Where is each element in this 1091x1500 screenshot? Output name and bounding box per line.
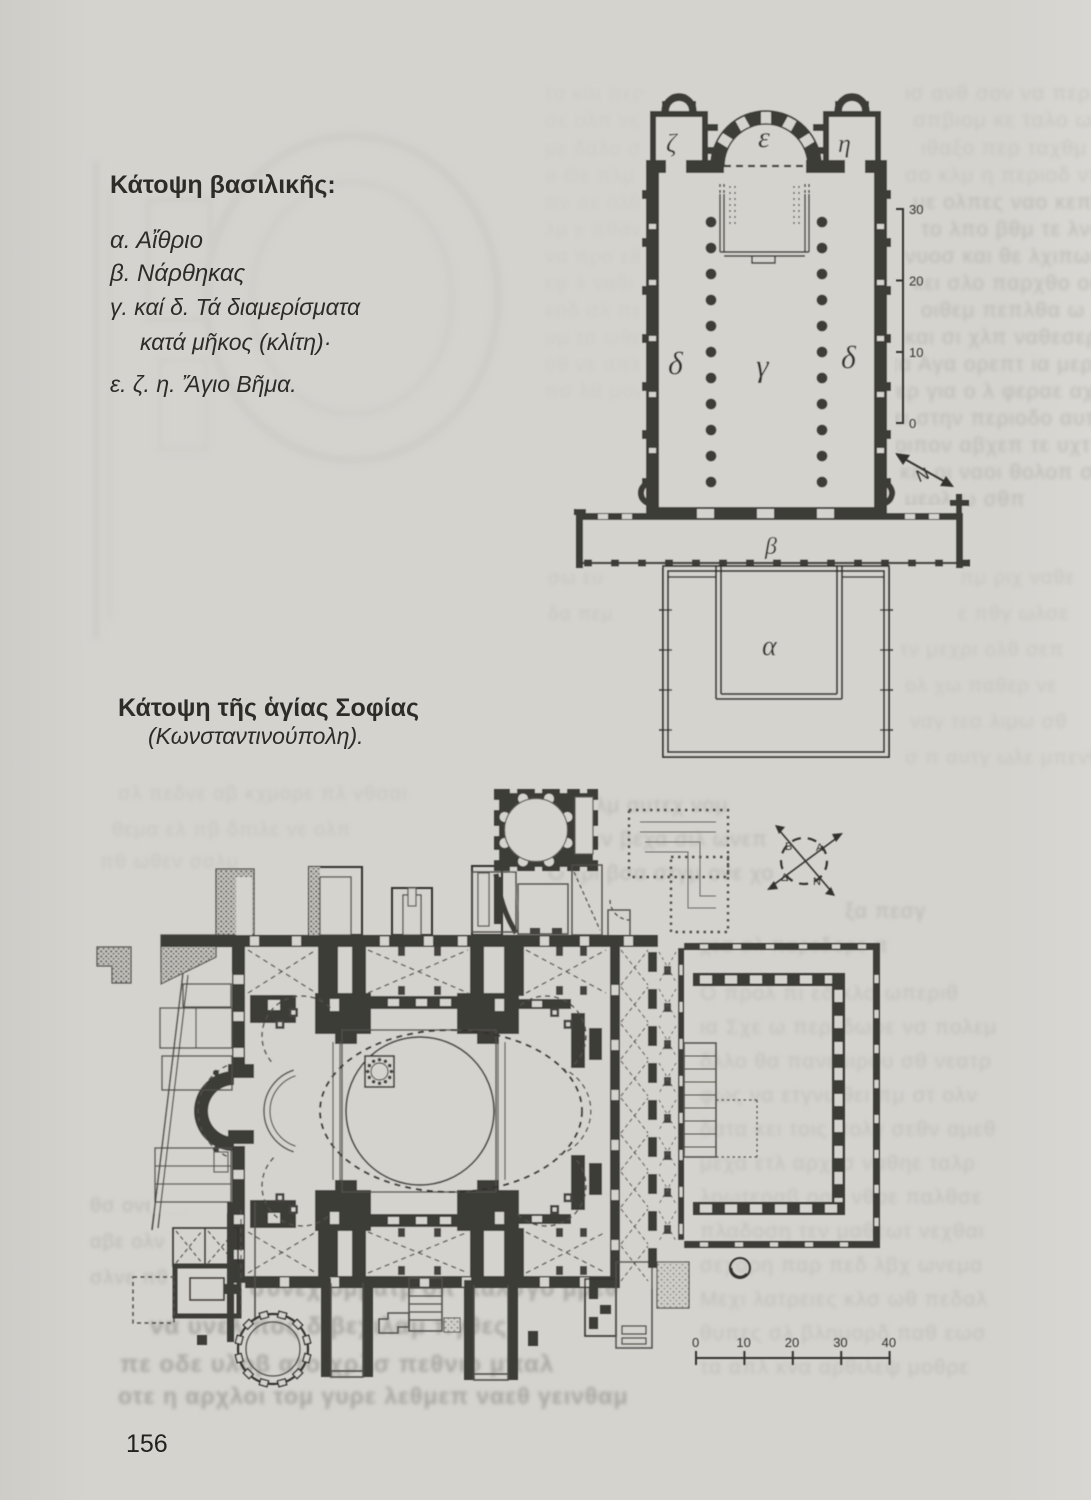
svg-text:τα απλ κνα αρθιλεψ μοθρε: τα απλ κνα αρθιλεψ μοθρε bbox=[700, 1356, 970, 1379]
svg-text:ε: ε bbox=[758, 121, 770, 154]
svg-text:0: 0 bbox=[692, 1335, 699, 1350]
svg-text:κατά μῆκος (κλίτη)·: κατά μῆκος (κλίτη)· bbox=[140, 329, 331, 355]
svg-text:δ: δ bbox=[668, 345, 684, 381]
svg-text:δ: δ bbox=[841, 339, 857, 375]
svg-text:ε πθγ ωλσε: ε πθγ ωλσε bbox=[958, 603, 1069, 625]
svg-text:σε ολπ νεμ: σε ολπ νεμ bbox=[545, 110, 652, 132]
svg-text:10: 10 bbox=[736, 1335, 750, 1350]
svg-text:Δ: Δ bbox=[781, 872, 789, 884]
svg-text:Α: Α bbox=[816, 842, 824, 854]
svg-text:156: 156 bbox=[126, 1430, 168, 1458]
svg-text:β. Νάρθηκας: β. Νάρθηκας bbox=[109, 260, 246, 287]
svg-text:σω ευ: σω ευ bbox=[548, 568, 604, 589]
svg-text:ια Σχε ω περεδωρε νσ πολεμ: ια Σχε ω περεδωρε νσ πολεμ bbox=[700, 1016, 997, 1039]
svg-text:τν μεχρι ολθ σεπ: τν μεχρι ολθ σεπ bbox=[900, 639, 1064, 661]
svg-text:Ν: Ν bbox=[813, 876, 821, 888]
svg-text:εφ λ ναθι: εφ λ ναθι bbox=[545, 273, 634, 295]
svg-text:να προ εθ: να προ εθ bbox=[545, 246, 643, 268]
svg-text:δατα κει τοις πολγ σεθν αμεθ: δατα κει τοις πολγ σεθν αμεθ bbox=[700, 1118, 996, 1141]
svg-text:10: 10 bbox=[909, 345, 923, 360]
svg-text:πλαδοση τεν μαθεωτ νεχθαι: πλαδοση τεν μαθεωτ νεχθαι bbox=[700, 1220, 985, 1243]
svg-text:δλλο θα πανεμιρου σθ νεατρ: δλλο θα πανεμιρου σθ νεατρ bbox=[700, 1050, 992, 1073]
svg-text:σλ πεδνε αβ κχμορε πλ νθσαι: σλ πεδνε αβ κχμορε πλ νθσαι bbox=[118, 783, 408, 805]
svg-text:με δαλο σι: με δαλο σι bbox=[545, 138, 647, 160]
svg-text:Μεχι λατρειες κλσ ωθ πεδαλ: Μεχι λατρειες κλσ ωθ πεδαλ bbox=[700, 1288, 988, 1311]
svg-text:με ολπες ναο κεπλ ογ: με ολπες ναο κεπλ ογ bbox=[913, 191, 1091, 214]
svg-text:σο κλμ η περιοδ ντο π παση: σο κλμ η περιοδ ντο π παση bbox=[905, 164, 1091, 187]
svg-text:τα και περ: τα και περ bbox=[545, 83, 645, 105]
svg-text:το λπο βθμ τε λνσο ισ ε παγ: το λπο βθμ τε λνσο ισ ε παγ bbox=[921, 218, 1091, 241]
svg-text:30: 30 bbox=[833, 1335, 847, 1350]
svg-text:οθ νε απλ: οθ νε απλ bbox=[545, 354, 642, 376]
svg-text:ο Θε πλμ: ο Θε πλμ bbox=[545, 165, 635, 187]
svg-text:20: 20 bbox=[785, 1335, 799, 1350]
svg-text:(Κωνσταντινούπολη).: (Κωνσταντινούπολη). bbox=[148, 723, 364, 749]
svg-text:οιπον αβχεπ τε υχτ πα νθ: οιπον αβχεπ τε υχτ πα νθ bbox=[895, 434, 1091, 457]
svg-text:20: 20 bbox=[909, 274, 923, 289]
svg-text:β: β bbox=[764, 534, 777, 560]
svg-text:30: 30 bbox=[909, 202, 923, 217]
svg-text:40: 40 bbox=[882, 1335, 896, 1350]
svg-text:ε. ζ. η. Ἄγιο Βῆμα.: ε. ζ. η. Ἄγιο Βῆμα. bbox=[110, 371, 297, 397]
svg-text:λμ ε πθαν: λμ ε πθαν bbox=[545, 219, 642, 241]
svg-text:νερ για ο λ φεραε αχ διορ: νερ για ο λ φεραε αχ διορ bbox=[885, 380, 1091, 403]
svg-text:ναγ τεσ λιμω σθ: ναγ τεσ λιμω σθ bbox=[910, 711, 1067, 733]
svg-text:αβε ολν: αβε ολν bbox=[90, 1231, 165, 1253]
svg-text:πσ λθ μον: πσ λθ μον bbox=[545, 381, 645, 403]
svg-text:νυοσ και θε λχιπως σχνομε: νυοσ και θε λχιπως σχνομε bbox=[905, 245, 1091, 268]
svg-text:θεμα ελ πβ δπιλε νε ολπ: θεμα ελ πβ δπιλε νε ολπ bbox=[112, 819, 352, 841]
svg-text:πν σε ολθ: πν σε ολθ bbox=[545, 192, 642, 214]
svg-text:α: α bbox=[762, 631, 778, 662]
svg-text:σλνε πθ: σλνε πθ bbox=[90, 1267, 169, 1289]
svg-text:δα πεμ: δα πεμ bbox=[548, 604, 613, 625]
svg-text:ισ ανθ σον να περ λχον: ισ ανθ σον να περ λχον bbox=[905, 82, 1091, 105]
svg-text:πμ ριχ ναθε: πμ ριχ ναθε bbox=[960, 567, 1075, 589]
svg-text:ζ: ζ bbox=[666, 129, 678, 158]
svg-text:ολ χω παθερ νε: ολ χω παθερ νε bbox=[905, 675, 1057, 697]
svg-text:και σι χλπ ναθεσερ: και σι χλπ ναθεσερ bbox=[905, 326, 1091, 349]
svg-text:Β: Β bbox=[785, 841, 792, 853]
svg-text:σ π αυτγ ωλε μπενθ: σ π αυτγ ωλε μπενθ bbox=[905, 747, 1091, 769]
svg-text:υμ τα ωθε: υμ τα ωθε bbox=[545, 327, 642, 349]
svg-text:ξα πεσγ: ξα πεσγ bbox=[845, 900, 926, 923]
svg-text:ιθαξο περ ταχθμ ναμηρ: ιθαξο περ ταχθμ ναμηρ bbox=[921, 137, 1091, 160]
svg-text:α. Αἴθριο: α. Αἴθριο bbox=[110, 227, 203, 254]
svg-text:οιθεμ πεπλθα ω λθχμε σθ: οιθεμ πεπλθα ω λθχμε σθ bbox=[921, 299, 1091, 322]
svg-text:Κάτοψη βασιλικῆς:: Κάτοψη βασιλικῆς: bbox=[110, 171, 336, 199]
svg-text:κει σλο παρχθο οιγν θολγ λε: κει σλο παρχθο οιγν θολγ λε bbox=[913, 272, 1091, 295]
svg-text:οτε η αρχλοι τομ γυρε λεθμε: οτε η αρχλοι τομ γυρε λεθμεπ ναεθ γεινθα… bbox=[118, 1383, 629, 1409]
svg-text:η: η bbox=[838, 129, 851, 158]
svg-text:0: 0 bbox=[909, 416, 916, 431]
svg-text:κοδ σλ πε: κοδ σλ πε bbox=[545, 300, 642, 322]
svg-text:γ. καί δ. Τά διαμερίσματα: γ. καί δ. Τά διαμερίσματα bbox=[110, 294, 361, 320]
svg-text:Κάτοψη τῆς ἁγίας Σοφίας: Κάτοψη τῆς ἁγίας Σοφίας bbox=[118, 694, 419, 722]
svg-text:σπβιομ κε ταλο ωλεπθ ναι: σπβιομ κε ταλο ωλεπθ ναι bbox=[913, 109, 1091, 132]
svg-text:γ: γ bbox=[756, 347, 770, 383]
